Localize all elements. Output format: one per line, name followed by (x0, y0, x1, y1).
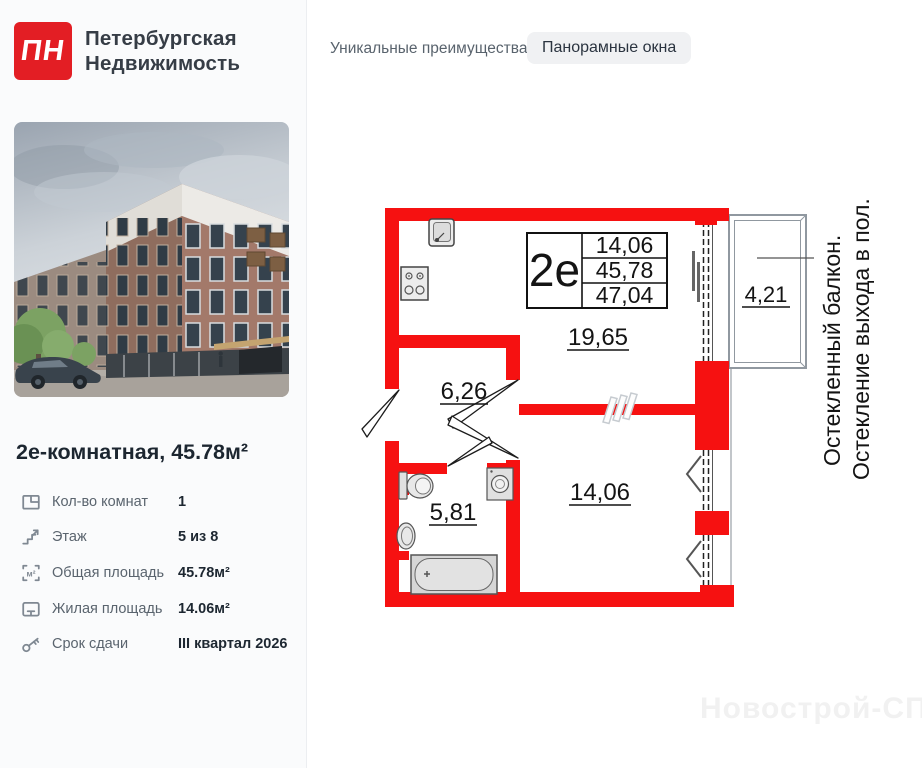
logo-name-line1: Петербургская (85, 26, 240, 51)
logo-mark: ПН (14, 22, 72, 80)
toilet-icon (399, 472, 433, 499)
annotation-line2: Остекление выхода в пол. (848, 198, 874, 480)
detail-value: 1 (178, 494, 186, 510)
advantages-label: Уникальные преимущества (330, 40, 527, 58)
detail-value: 5 из 8 (178, 529, 218, 545)
listing-sidebar: ПН Петербургская Недвижимость (0, 0, 307, 768)
washbasin-icon (397, 523, 415, 549)
unit-code: 2е (529, 244, 580, 296)
detail-label: Общая площадь (52, 565, 164, 581)
table-living-area: 14,06 (596, 232, 654, 258)
logo-abbr: ПН (19, 35, 67, 68)
company-logo[interactable]: ПН Петербургская Недвижимость (14, 22, 240, 80)
detail-label: Срок сдачи (52, 636, 128, 652)
detail-value: III квартал 2026 (178, 636, 288, 652)
floor-icon (21, 527, 41, 547)
total-area-icon: м² (21, 563, 41, 583)
advantage-badge-panoramic-windows[interactable]: Панорамные окна (527, 32, 691, 64)
detail-row-living-area: Жилая площадь 14.06м² (21, 591, 293, 627)
radiator-symbol (692, 251, 700, 302)
building-photo-render (14, 122, 289, 397)
table-area-no-balcony: 45,78 (596, 257, 654, 283)
room-label-hallway: 6,26 (441, 378, 488, 405)
detail-row-floor: Этаж 5 из 8 (21, 520, 293, 556)
detail-row-total-area: м² Общая площадь 45.78м² (21, 555, 293, 591)
room-label-bathroom: 5,81 (430, 499, 477, 526)
detail-value: 45.78м² (178, 565, 230, 581)
kitchen-sink-icon (429, 219, 454, 246)
watermark: Новострой-СПб (700, 692, 922, 726)
page-title: 2е-комнатная, 45.78м² (16, 440, 248, 465)
detail-label: Жилая площадь (52, 601, 162, 617)
bathtub-icon (411, 555, 497, 594)
living-area-icon (21, 599, 41, 619)
table-total-area: 47,04 (596, 282, 654, 308)
building-photo[interactable] (14, 122, 289, 397)
key-icon (21, 634, 41, 654)
washing-machine-icon (487, 468, 513, 500)
details-list: Кол-во комнат 1 Этаж 5 из 8 м² Общая пло… (21, 484, 293, 662)
area-icon-glyph: м² (27, 568, 36, 578)
detail-label: Этаж (52, 529, 87, 545)
detail-value: 14.06м² (178, 601, 230, 617)
sliding-door-symbol (603, 393, 637, 424)
logo-text: Петербургская Недвижимость (85, 26, 240, 76)
room-label-bedroom: 14,06 (570, 479, 630, 506)
logo-name-line2: Недвижимость (85, 51, 240, 76)
floor-plan: 2е 14,06 45,78 47,04 19,65 6,26 5,81 14,… (350, 195, 922, 625)
detail-row-completion: Срок сдачи III квартал 2026 (21, 626, 293, 662)
balcony-annotations: Остекленный балкон. Остекление выхода в … (819, 198, 874, 480)
room-label-balcony: 4,21 (745, 282, 788, 307)
unit-info-table: 2е 14,06 45,78 47,04 (527, 232, 667, 308)
detail-label: Кол-во комнат (52, 494, 148, 510)
annotation-line1: Остекленный балкон. (819, 235, 845, 466)
stove-icon (401, 267, 428, 300)
detail-row-rooms: Кол-во комнат 1 (21, 484, 293, 520)
rooms-icon (21, 492, 41, 512)
room-label-kitchen-living: 19,65 (568, 324, 628, 351)
